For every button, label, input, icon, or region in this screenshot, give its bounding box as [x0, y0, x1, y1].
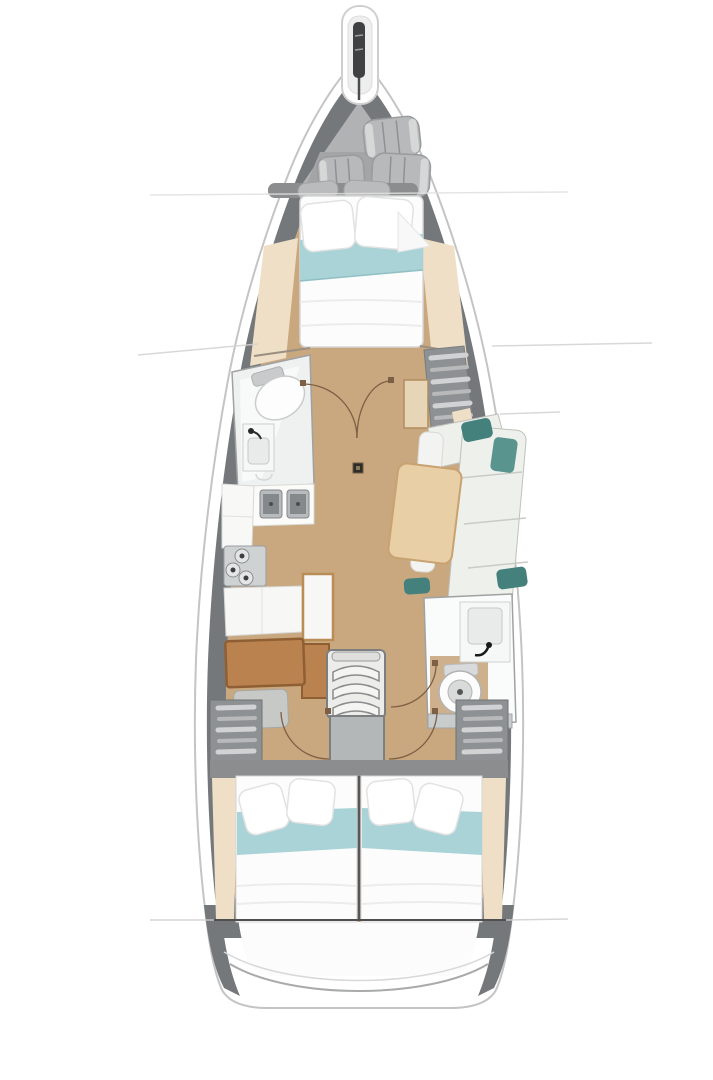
steps-sill	[332, 652, 380, 661]
aft-shelf-starboard	[480, 778, 506, 920]
anchor-roller-pin	[355, 35, 363, 36]
pillow	[300, 199, 357, 252]
door-post	[388, 377, 394, 383]
washbasin	[468, 608, 502, 644]
door-post	[325, 708, 331, 714]
side-shelf-unit	[404, 380, 428, 428]
boat-floorplan	[0, 0, 713, 1080]
bowsprit	[342, 6, 378, 104]
aft-cabins	[210, 760, 508, 922]
sheer-line-starboard	[492, 343, 652, 346]
settee-cushion-teal	[403, 577, 430, 595]
chart-desk	[225, 639, 305, 688]
settee-cushion-teal	[496, 566, 528, 590]
nav-bench-lower	[302, 644, 329, 698]
mast-post-core	[356, 466, 360, 470]
sink-drain	[296, 502, 300, 506]
forward-head	[232, 355, 314, 492]
saloon-table	[387, 462, 462, 564]
nav-bench-upper	[303, 574, 333, 640]
washbasin	[248, 438, 269, 464]
sink-drain	[269, 502, 273, 506]
settee-cushion-teal	[490, 436, 518, 473]
pillow	[286, 778, 336, 827]
pillow	[366, 778, 416, 827]
galley-cabinet-lower	[224, 586, 302, 636]
door-post	[300, 380, 306, 386]
anchor-roller-pin	[355, 49, 363, 50]
section-line-stern-starboard	[506, 919, 568, 920]
aft-shelf-port	[212, 778, 238, 920]
toilet-drain	[457, 689, 463, 695]
door-post	[432, 660, 438, 666]
sheer-line-starboard-2	[500, 412, 560, 414]
aft-bulkhead	[210, 760, 508, 778]
boat-floorplan-canvas	[0, 0, 713, 1080]
companionway	[327, 650, 385, 776]
